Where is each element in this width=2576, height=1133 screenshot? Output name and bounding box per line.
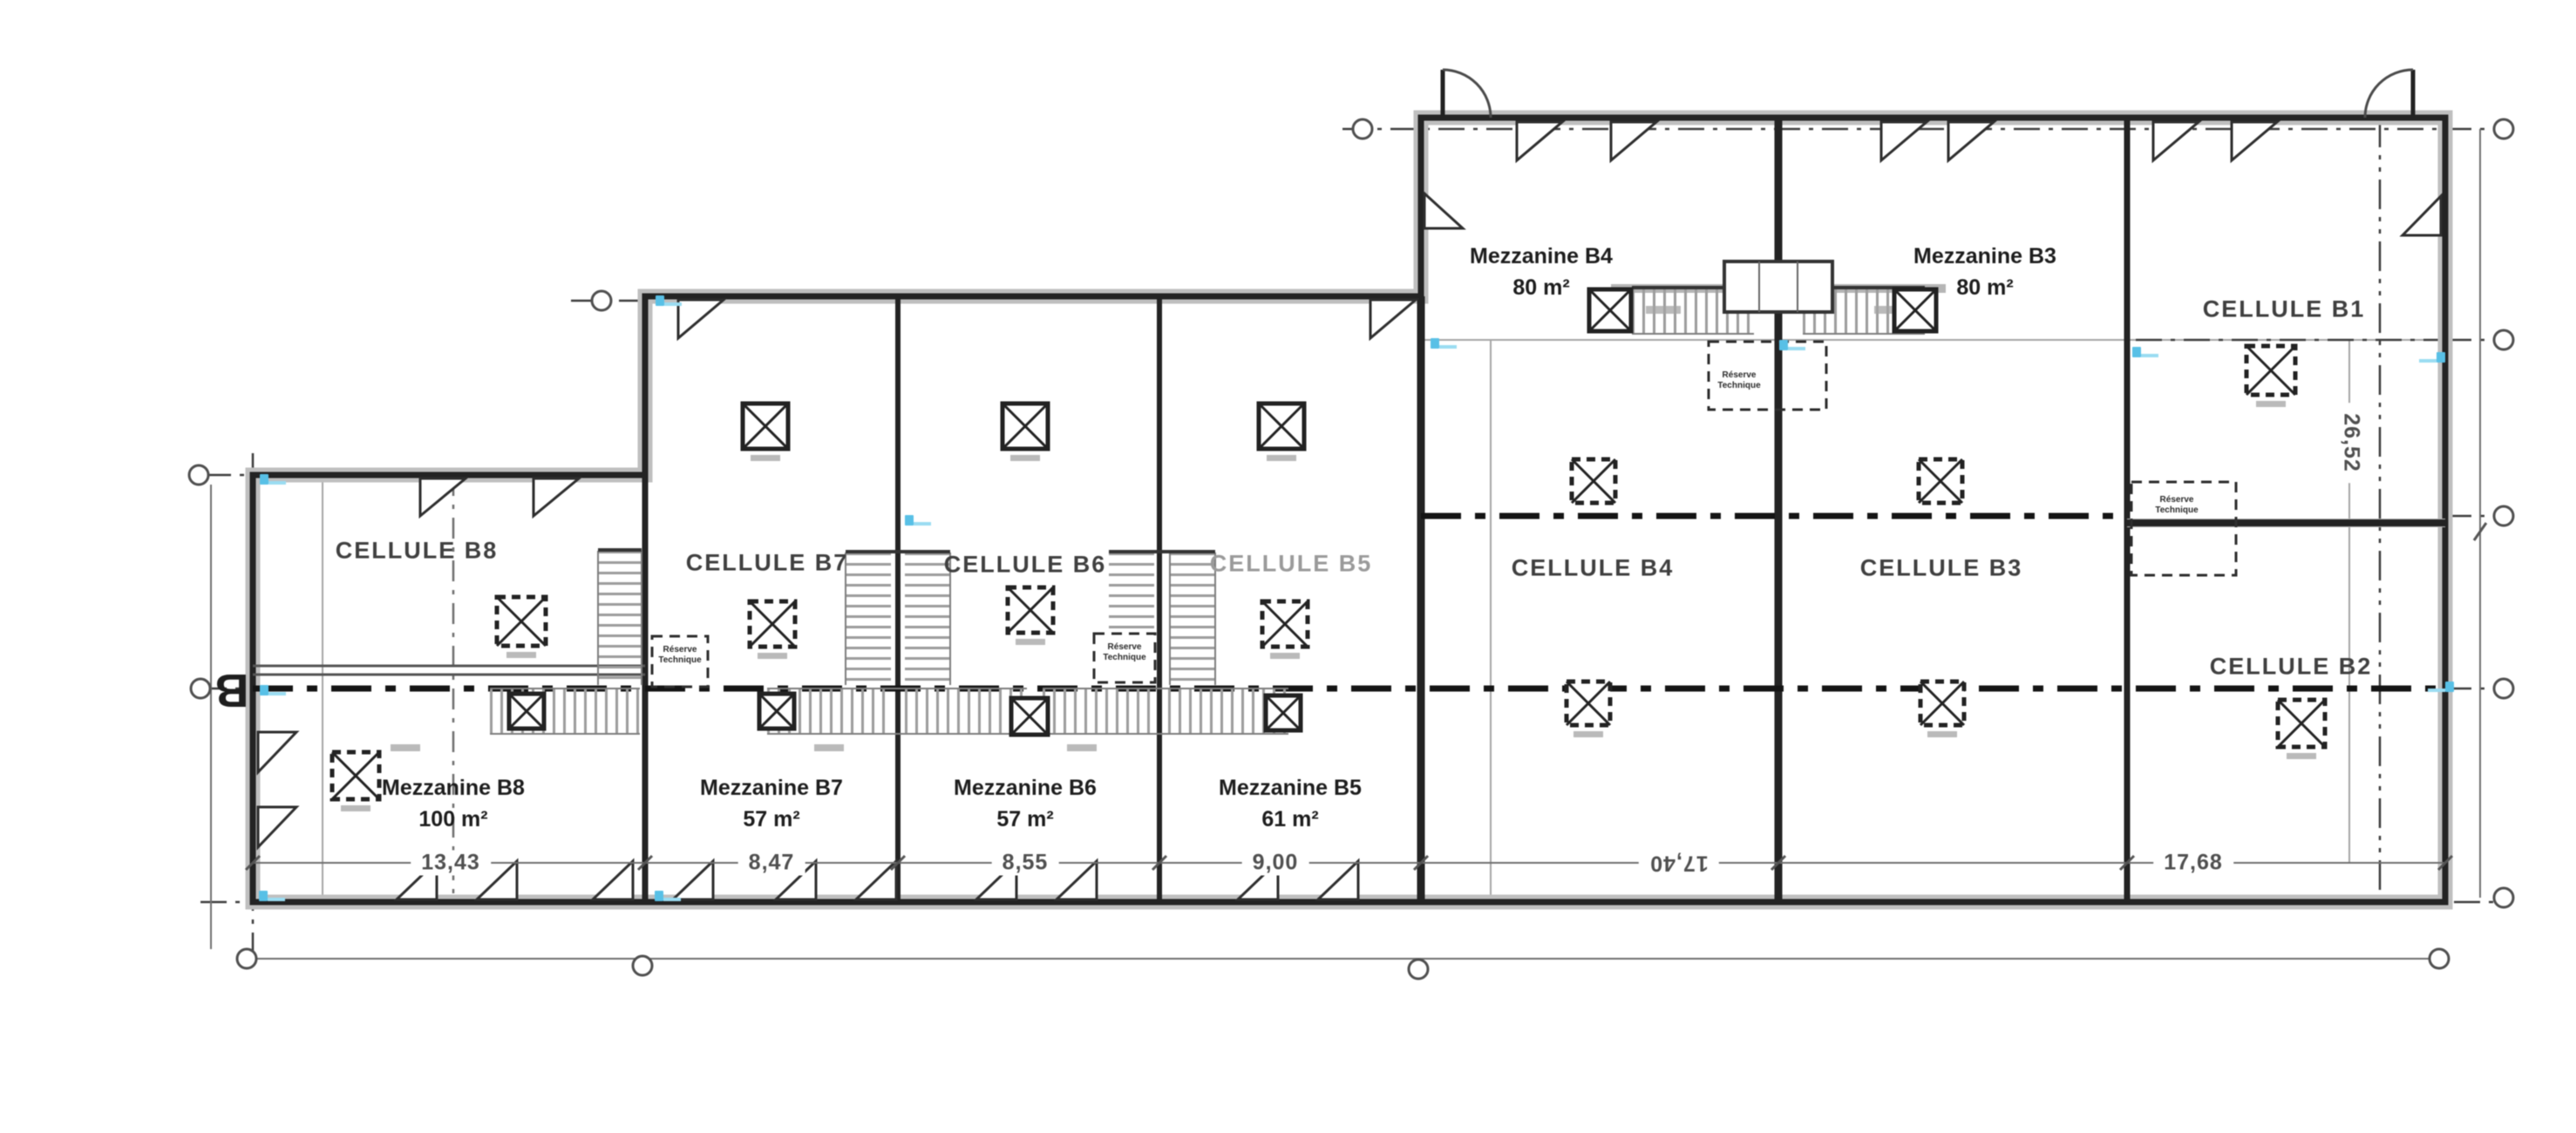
mezzanine-label-b6: Mezzanine B6 57 m² (954, 772, 1097, 836)
room-label-cellule-b8: CELLULE B8 (336, 538, 499, 565)
grid-axis-label-b: B (215, 663, 249, 717)
dimension-cell-b7-width: 8,47 (738, 851, 805, 876)
mezzanine-label-b5: Mezzanine B5 61 m² (1219, 772, 1362, 836)
dimension-cells-b4-b3-width: 17,40 (1639, 851, 1719, 876)
stairs (391, 261, 1946, 751)
mezzanine-b8-name: Mezzanine B8 (382, 772, 525, 804)
technical-room-label-3: Réserve Technique (1717, 370, 1760, 391)
room-label-cellule-b7: CELLULE B7 (686, 550, 849, 577)
technical-room-text: Réserve (1103, 642, 1145, 653)
dimension-cell-b8-width: 13,43 (411, 851, 491, 876)
mezzanine-b8-area: 100 m² (382, 804, 525, 835)
mezzanine-b3-area: 80 m² (1913, 272, 2056, 303)
room-label-cellule-b5: CELLULE B5 (1210, 551, 1373, 578)
dimension-right-wing-depth: 26,52 (2339, 403, 2364, 483)
room-label-cellule-b1: CELLULE B1 (2203, 296, 2366, 323)
technical-room-text: Réserve (658, 645, 701, 655)
mezzanine-b4-name: Mezzanine B4 (1470, 241, 1613, 272)
dimension-cell-b6-width: 8,55 (992, 851, 1059, 876)
technical-room-label-1: Réserve Technique (658, 645, 701, 666)
mezzanine-label-b8: Mezzanine B8 100 m² (382, 772, 525, 836)
mezzanine-b3-name: Mezzanine B3 (1913, 241, 2056, 272)
mezzanine-label-b4: Mezzanine B4 80 m² (1470, 241, 1613, 304)
mezzanine-b6-name: Mezzanine B6 (954, 772, 1097, 804)
mezzanine-b5-area: 61 m² (1219, 804, 1362, 835)
technical-room-text: Technique (2155, 505, 2198, 516)
technical-room-label-4: Réserve Technique (2155, 495, 2198, 516)
technical-room-text: Réserve (1717, 370, 1760, 381)
floor-plan: CELLULE B8 CELLULE B7 CELLULE B6 CELLULE… (0, 0, 2576, 1133)
mezzanine-b6-area: 57 m² (954, 804, 1097, 835)
mezzanine-label-b3: Mezzanine B3 80 m² (1913, 241, 2056, 304)
technical-room-text: Technique (1717, 381, 1760, 391)
technical-room-text: Technique (1103, 653, 1145, 663)
room-label-cellule-b3: CELLULE B3 (1860, 555, 2023, 582)
mezzanine-label-b7: Mezzanine B7 57 m² (700, 772, 843, 836)
room-label-cellule-b6: CELLULE B6 (944, 552, 1107, 579)
dimension-cells-b1-b2-width: 17,68 (2153, 851, 2233, 876)
mezzanine-b4-area: 80 m² (1470, 272, 1613, 303)
mezzanine-b7-area: 57 m² (700, 804, 843, 835)
technical-room-text: Réserve (2155, 495, 2198, 505)
technical-room-label-2: Réserve Technique (1103, 642, 1145, 663)
mezzanine-b7-name: Mezzanine B7 (700, 772, 843, 804)
room-label-cellule-b4: CELLULE B4 (1512, 555, 1675, 582)
technical-room-text: Technique (658, 655, 701, 666)
mezzanine-b5-name: Mezzanine B5 (1219, 772, 1362, 804)
room-label-cellule-b2: CELLULE B2 (2210, 654, 2373, 681)
dimension-cell-b5-width: 9,00 (1242, 851, 1309, 876)
